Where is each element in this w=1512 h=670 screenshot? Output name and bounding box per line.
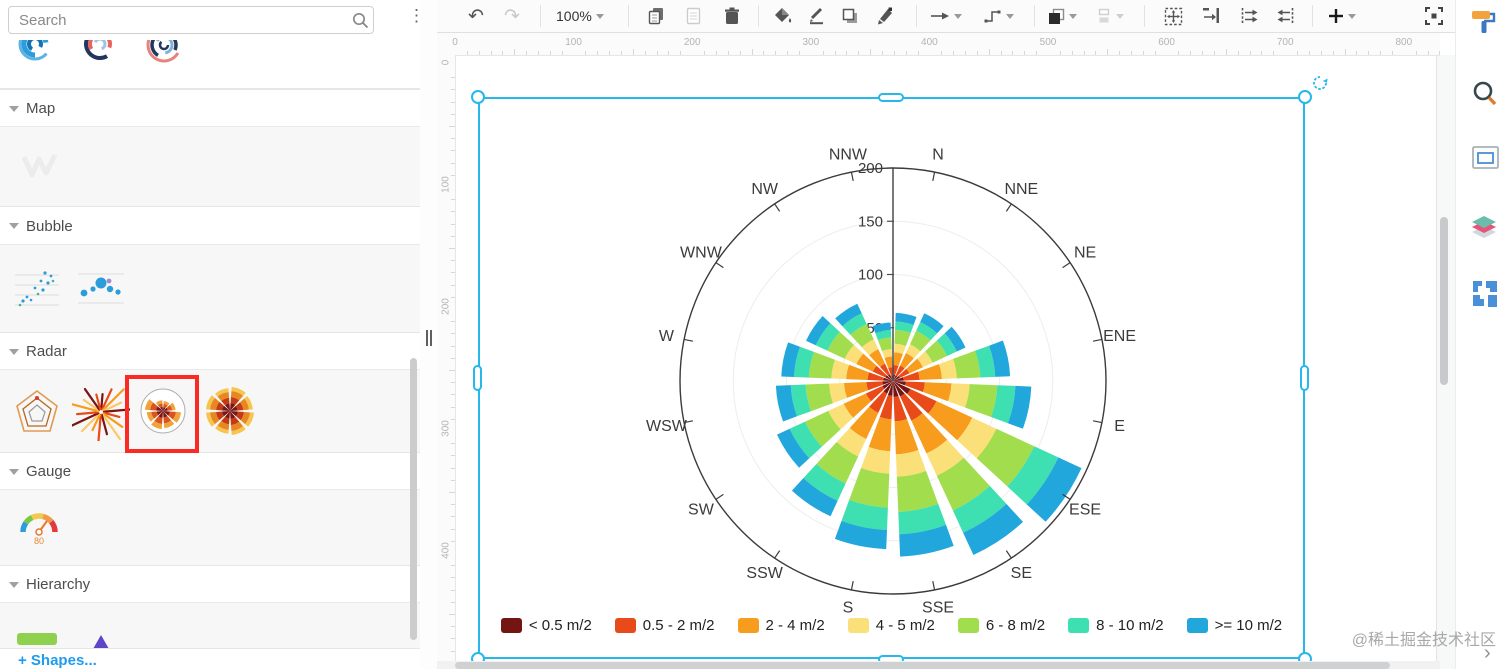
- h-ruler-label: 400: [921, 37, 938, 48]
- redo-button[interactable]: ↷: [504, 3, 520, 29]
- canvas-horizontal-scrollbar[interactable]: [455, 662, 1390, 669]
- format-paint-roller-icon[interactable]: [1470, 8, 1498, 36]
- legend-item[interactable]: 8 - 10 m/2: [1068, 617, 1164, 634]
- legend-item[interactable]: 6 - 8 m/2: [958, 617, 1045, 634]
- h-ruler-label: 600: [1158, 37, 1175, 48]
- paste-button[interactable]: [686, 3, 701, 29]
- chevron-down-icon: [9, 469, 19, 475]
- v-ruler-label: 400: [441, 538, 452, 564]
- shadow-button[interactable]: [842, 3, 859, 29]
- section-header-radar[interactable]: Radar: [0, 332, 420, 370]
- legend-swatch: [501, 618, 522, 633]
- zoom-level-label: 100%: [556, 8, 592, 24]
- wind-rose-chart[interactable]: 50100150200NNNENEENEEESESESSESSSWSWWSWWW…: [455, 55, 1440, 669]
- zoom-select[interactable]: 100%: [556, 3, 604, 29]
- distribute-left-button[interactable]: [1276, 3, 1295, 29]
- v-ruler-label: 300: [441, 416, 452, 442]
- radial-tick-label: 100: [858, 267, 883, 284]
- chevron-down-icon: [1069, 14, 1077, 19]
- delete-button[interactable]: [724, 3, 740, 29]
- legend-label: < 0.5 m/2: [529, 617, 592, 634]
- v-ruler-label: 100: [441, 172, 452, 198]
- direction-label: ESE: [1069, 501, 1101, 518]
- resize-handle-n[interactable]: [878, 93, 904, 102]
- pyramid-thumbnail[interactable]: [93, 635, 109, 649]
- chevron-down-icon: [1348, 14, 1356, 19]
- layers-panel-icon[interactable]: [1470, 213, 1498, 241]
- wind-rose-wedge-segment: [895, 330, 911, 346]
- sidebar-menu-icon[interactable]: ⋮: [408, 7, 425, 24]
- gauge-thumbnail[interactable]: 80: [14, 506, 64, 552]
- to-front-button[interactable]: [1048, 3, 1077, 29]
- wind-rose-wedge-segment: [965, 384, 997, 417]
- panel-expand-chevron[interactable]: ›: [1484, 642, 1491, 665]
- direction-label: ENE: [1103, 328, 1136, 345]
- legend-swatch: [958, 618, 979, 633]
- legend-item[interactable]: 2 - 4 m/2: [738, 617, 825, 634]
- h-ruler-label: 200: [684, 37, 701, 48]
- rotate-handle-icon[interactable]: [1310, 73, 1330, 93]
- toolbar-separator: [916, 5, 917, 27]
- legend-item[interactable]: 4 - 5 m/2: [848, 617, 935, 634]
- direction-label: SE: [1011, 565, 1032, 582]
- direction-label: NW: [751, 181, 779, 198]
- toolbar-separator: [1312, 5, 1313, 27]
- select-move-button[interactable]: [1164, 3, 1183, 29]
- h-ruler-label: 300: [802, 37, 819, 48]
- toolbar-separator: [628, 5, 629, 27]
- direction-label: S: [843, 600, 854, 617]
- line-color-button[interactable]: [808, 3, 826, 29]
- legend-label: 8 - 10 m/2: [1096, 617, 1164, 634]
- v-ruler-label: 200: [441, 294, 452, 320]
- chevron-down-icon: [954, 14, 962, 19]
- direction-label: SSE: [922, 600, 954, 617]
- connection-style-button[interactable]: [984, 3, 1014, 29]
- align-button[interactable]: [1096, 3, 1124, 29]
- chevron-down-icon: [1116, 14, 1124, 19]
- section-header-gauge[interactable]: Gauge: [0, 452, 420, 490]
- legend-label: 4 - 5 m/2: [876, 617, 935, 634]
- scatter-plot-thumbnail[interactable]: [15, 267, 59, 309]
- resize-handle-e[interactable]: [1300, 365, 1309, 391]
- wind-rose-wedge-segment: [849, 468, 889, 508]
- section-label: Gauge: [26, 463, 71, 480]
- wind-rose-wedge-segment: [953, 351, 980, 379]
- section-label: Radar: [26, 343, 67, 360]
- direction-label: SSW: [746, 565, 783, 582]
- wind-rose-wedge-segment: [878, 337, 892, 351]
- selected-shape-highlight: [125, 375, 199, 453]
- outline-panel-icon[interactable]: [1472, 146, 1499, 170]
- distribute-right-button[interactable]: [1240, 3, 1259, 29]
- direction-label: NNE: [1004, 181, 1038, 198]
- search-input[interactable]: [8, 6, 374, 34]
- chart-legend: < 0.5 m/20.5 - 2 m/22 - 4 m/24 - 5 m/26 …: [478, 617, 1305, 634]
- legend-swatch: [1187, 618, 1208, 633]
- chevron-down-icon: [9, 106, 19, 112]
- map-ghost-thumbnail[interactable]: [22, 151, 58, 181]
- legend-swatch: [738, 618, 759, 633]
- section-body-map: [0, 126, 420, 207]
- bubble-chart-thumbnail[interactable]: [78, 267, 124, 309]
- direction-label: E: [1114, 418, 1125, 435]
- sidebar-collapse-handle[interactable]: [426, 330, 434, 346]
- legend-label: >= 10 m/2: [1215, 617, 1283, 634]
- toolbar-separator: [1144, 5, 1145, 27]
- legend-label: 0.5 - 2 m/2: [643, 617, 715, 634]
- search-panel-icon[interactable]: [1472, 80, 1498, 108]
- section-label: Hierarchy: [26, 576, 90, 593]
- gauge-value: 80: [34, 536, 44, 546]
- chevron-down-icon: [596, 14, 604, 19]
- direction-label: NE: [1074, 245, 1096, 262]
- tree-chart-thumbnail[interactable]: [17, 633, 57, 645]
- toolbar-separator: [758, 5, 759, 27]
- wind-rose-wedge-segment: [809, 352, 835, 379]
- shapes-panel-icon[interactable]: [1472, 280, 1498, 307]
- horizontal-ruler: 0100200300400500600700800: [455, 33, 1440, 56]
- search-icon: [352, 12, 369, 29]
- wind-rose-wedge-segment: [806, 384, 833, 412]
- shape-library-sidebar: ⋮ Map Bubble Radar: [0, 0, 421, 669]
- connection-arrow-button[interactable]: [930, 3, 962, 29]
- section-body-hierarchy: [0, 602, 420, 649]
- wind-rose-wedge-segment: [897, 471, 938, 512]
- sidebar-scrollbar[interactable]: [410, 358, 417, 640]
- section-body-radar: [0, 369, 420, 453]
- resize-handle-w[interactable]: [473, 365, 482, 391]
- legend-item[interactable]: < 0.5 m/2: [501, 617, 592, 634]
- legend-item[interactable]: 0.5 - 2 m/2: [615, 617, 715, 634]
- legend-swatch: [848, 618, 869, 633]
- format-painter-button[interactable]: [876, 3, 894, 29]
- wind-rose-full-thumbnail[interactable]: [204, 385, 256, 437]
- section-header-bubble[interactable]: Bubble: [0, 206, 420, 245]
- section-header-map[interactable]: Map: [0, 89, 420, 127]
- copy-button[interactable]: [648, 3, 665, 29]
- h-ruler-label: 0: [452, 37, 458, 48]
- vertical-ruler: 0100200300400: [437, 55, 456, 669]
- watermark: @稀土掘金技术社区: [1328, 626, 1496, 650]
- direction-label: WNW: [680, 245, 723, 262]
- shapes-footer: + Shapes...: [0, 648, 420, 670]
- radial-tick-label: 150: [858, 213, 883, 230]
- legend-swatch: [1068, 618, 1089, 633]
- section-header-hierarchy[interactable]: Hierarchy: [0, 565, 420, 603]
- insert-button[interactable]: [1328, 3, 1356, 29]
- more-shapes-link[interactable]: + Shapes...: [18, 652, 97, 669]
- v-ruler-label: 0: [441, 50, 452, 76]
- legend-item[interactable]: >= 10 m/2: [1187, 617, 1283, 634]
- direction-label: WSW: [646, 418, 688, 435]
- direction-label: N: [932, 146, 944, 163]
- fit-size-button[interactable]: [1202, 3, 1221, 29]
- toolbar-separator: [540, 5, 541, 27]
- legend-label: 6 - 8 m/2: [986, 617, 1045, 634]
- toolbar-separator: [1034, 5, 1035, 27]
- chevron-down-icon: [9, 223, 19, 229]
- resize-handle-nw[interactable]: [471, 90, 485, 104]
- legend-label: 2 - 4 m/2: [766, 617, 825, 634]
- section-label: Map: [26, 100, 55, 117]
- chevron-down-icon: [9, 582, 19, 588]
- direction-label: SW: [688, 501, 715, 518]
- section-body-gauge: 80: [0, 489, 420, 566]
- direction-label: NNW: [829, 146, 868, 163]
- chevron-down-icon: [1006, 14, 1014, 19]
- fullscreen-button[interactable]: [1424, 3, 1444, 29]
- radial-burst-thumbnail[interactable]: [72, 383, 130, 441]
- section-label: Bubble: [26, 218, 73, 235]
- sidebar-search-row: ⋮: [0, 0, 420, 40]
- h-ruler-label: 700: [1277, 37, 1294, 48]
- radar-pentagon-thumbnail[interactable]: [12, 387, 62, 437]
- h-ruler-label: 500: [1040, 37, 1057, 48]
- chevron-down-icon: [9, 349, 19, 355]
- h-ruler-label: 800: [1395, 37, 1412, 48]
- legend-swatch: [615, 618, 636, 633]
- section-body-bubble: [0, 244, 420, 333]
- canvas-vertical-scrollbar[interactable]: [1440, 217, 1448, 385]
- undo-button[interactable]: ↶: [468, 3, 484, 29]
- h-ruler-label: 100: [565, 37, 582, 48]
- fill-color-button[interactable]: [774, 3, 793, 29]
- direction-label: W: [659, 328, 675, 345]
